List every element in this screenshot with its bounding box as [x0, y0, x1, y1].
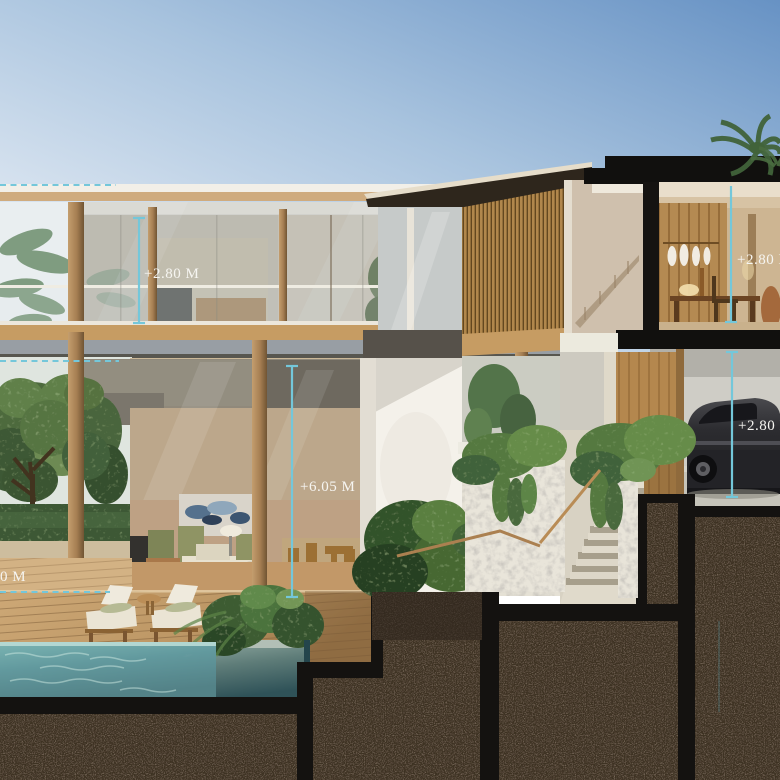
- svg-text:+2.80 M: +2.80 M: [737, 252, 780, 268]
- svg-text:0 M: 0 M: [0, 569, 26, 585]
- svg-text:+2.80 M: +2.80 M: [738, 418, 780, 434]
- svg-text:+2.80 M: +2.80 M: [144, 266, 199, 282]
- svg-text:+6.05 M: +6.05 M: [300, 479, 355, 495]
